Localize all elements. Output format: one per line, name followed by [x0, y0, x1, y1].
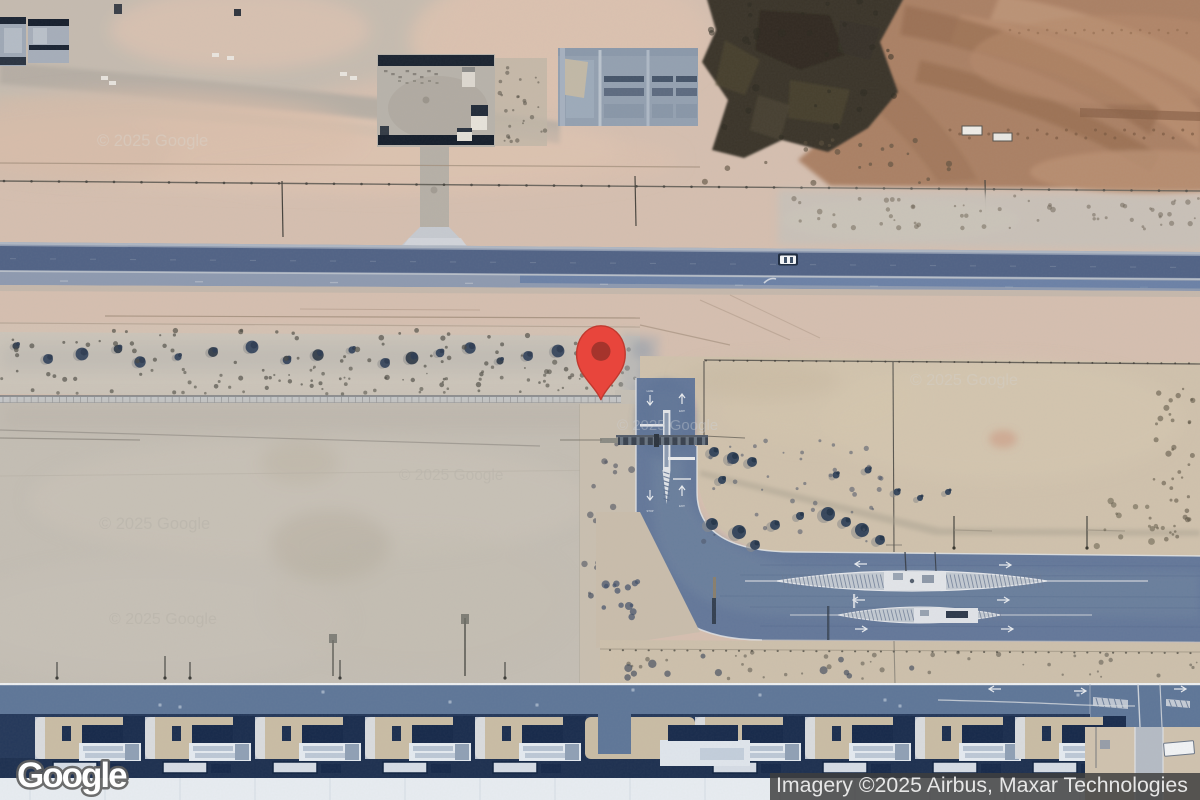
svg-text:Imagery ©2025 Airbus, Maxar Te: Imagery ©2025 Airbus, Maxar Technologies: [776, 773, 1188, 797]
svg-text:Google: Google: [17, 756, 127, 795]
